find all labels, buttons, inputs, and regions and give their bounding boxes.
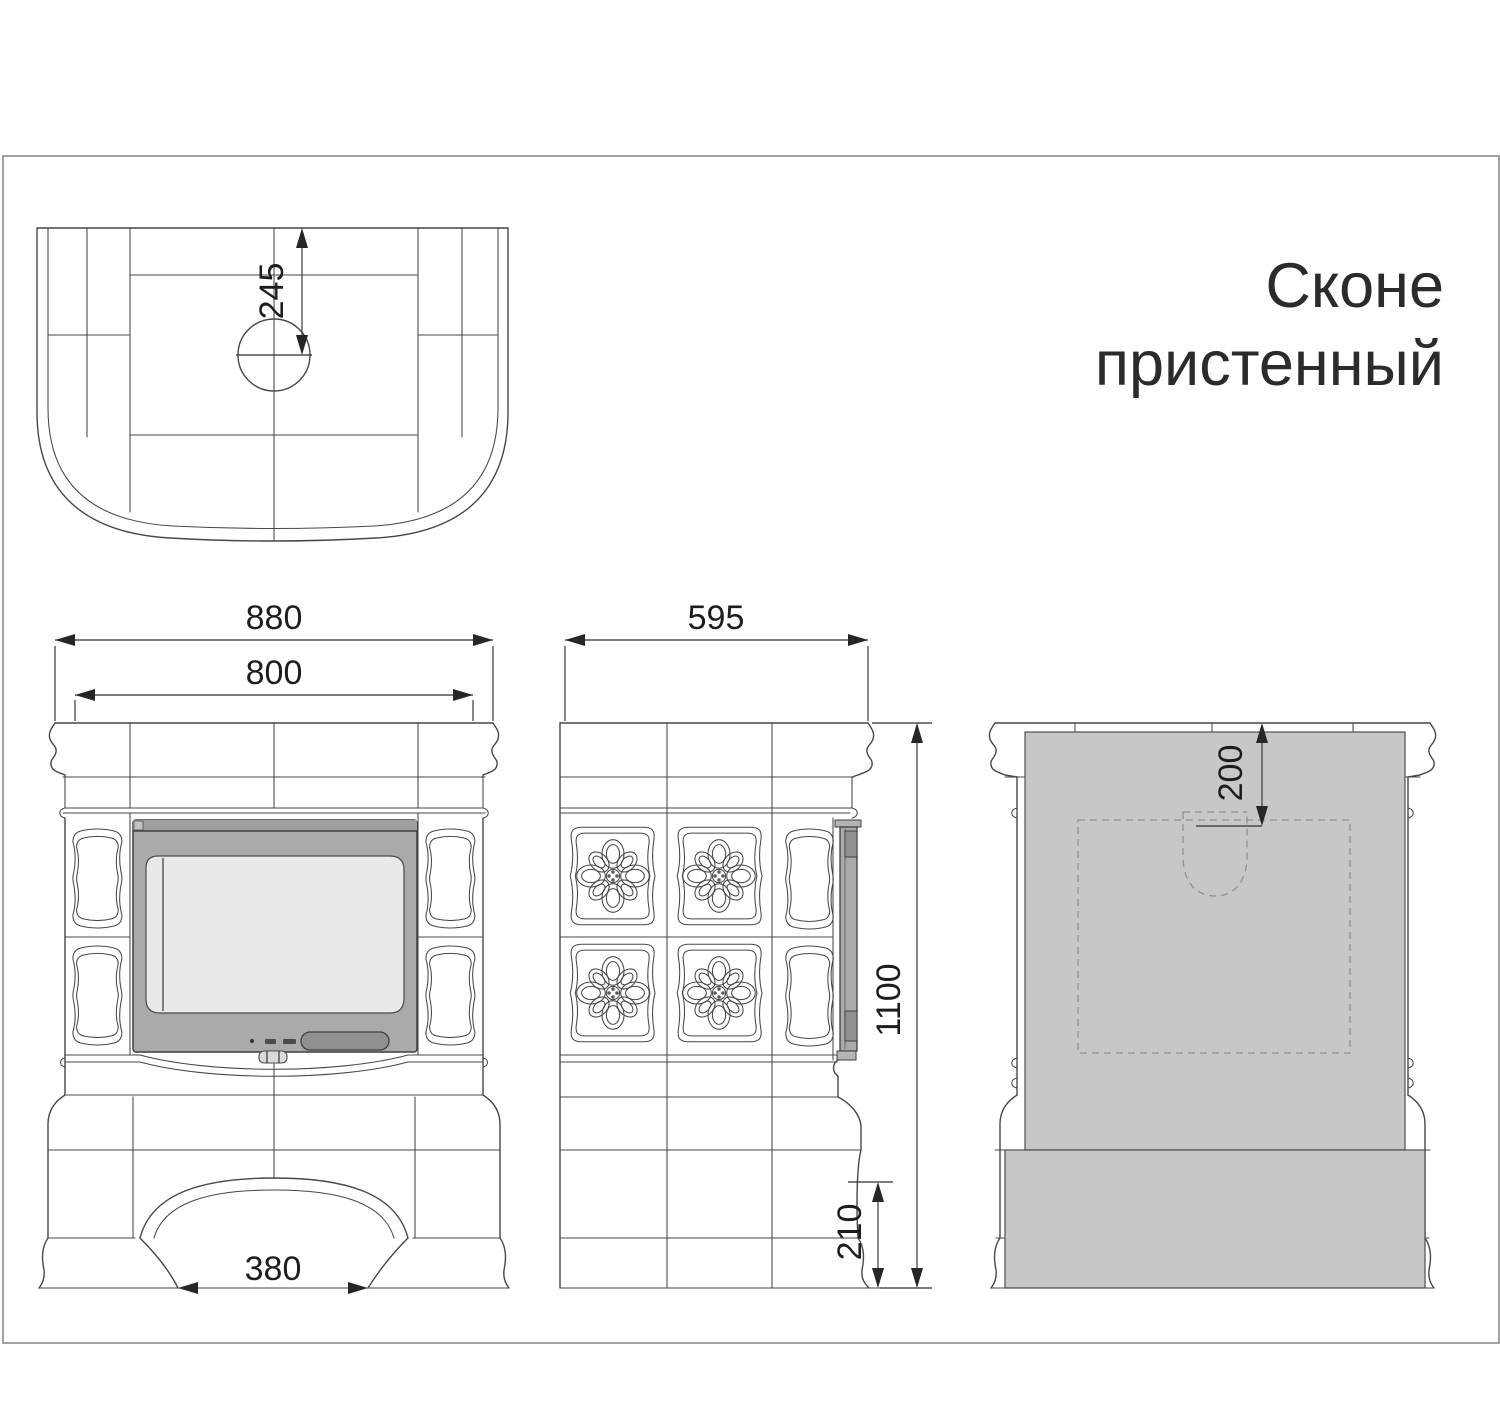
door-hinge [845,831,857,857]
title-line-1: Сконе [1265,251,1444,321]
door-vent-mark [265,1039,276,1044]
dim-1100-label: 1100 [870,963,908,1036]
door-top-lip-side [835,820,861,827]
door-indicator-dot [250,1039,254,1043]
dim-800-label: 800 [246,654,303,692]
dim-200-label: 200 [1212,745,1250,802]
firebox-door [133,820,417,1063]
door-bottom-tab [837,1051,856,1060]
drawing-page: Сконе пристенный 245 880 800 [0,0,1500,1427]
door-vent-mark [283,1039,296,1044]
door-handle [301,1032,389,1050]
heat-shield-lower [1005,1150,1425,1288]
dim-380-label: 380 [245,1250,302,1288]
dim-880-label: 880 [246,599,303,637]
door-hinge-notch [134,821,143,830]
stove-technical-drawing: Сконе пристенный 245 880 800 [0,0,1500,1427]
dim-210-label: 210 [831,1204,869,1261]
rear-view: 200 [989,723,1435,1288]
door-glass [146,856,404,1013]
dim-595-label: 595 [688,599,745,637]
door-hinge [845,1011,857,1041]
dim-245-label: 245 [253,263,291,320]
door-latch [259,1051,287,1063]
title-line-2: пристенный [1095,329,1444,399]
door-top-lip [133,820,417,831]
